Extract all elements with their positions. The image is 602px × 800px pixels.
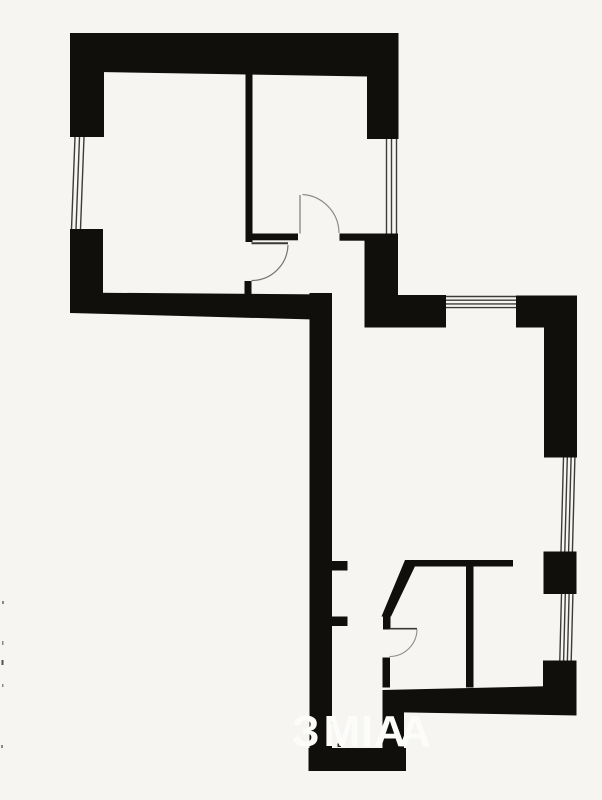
svg-text:І: І [361,707,373,756]
svg-text:М: М [324,707,361,756]
svg-text:А: А [399,707,431,756]
svg-text:З: З [292,707,320,756]
